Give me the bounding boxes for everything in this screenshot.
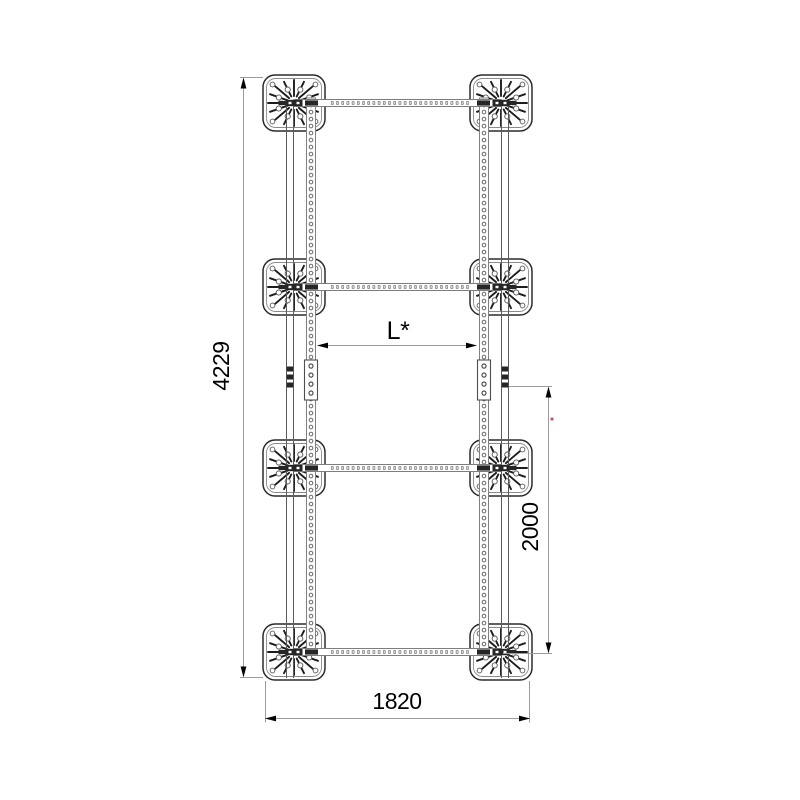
dimension-label-width-total: 1820	[372, 688, 421, 714]
cross-beam	[281, 465, 514, 472]
dimension-span-lower: 2000	[503, 387, 552, 654]
arrowhead-down-icon	[241, 667, 247, 678]
cross-beam	[281, 649, 514, 656]
dimension-span-variable: L*	[317, 317, 477, 348]
arrowhead-up-icon	[241, 78, 247, 89]
arrowhead-left-icon	[265, 716, 276, 722]
perforated-rail-right	[478, 98, 491, 653]
red-marker-dot	[550, 417, 553, 420]
arrowhead-left-icon	[317, 343, 328, 349]
technical-drawing-canvas: 4229 L* 2000 1820	[0, 0, 800, 800]
channel-rail-right	[502, 100, 509, 678]
base-plates	[263, 75, 532, 680]
dimension-label-span-variable: L*	[387, 317, 410, 345]
dimension-height-total: 4229	[208, 78, 263, 678]
arrowhead-down-icon	[546, 643, 552, 654]
arrowhead-up-icon	[546, 387, 552, 398]
dimension-label-span-lower: 2000	[517, 502, 543, 551]
dimension-width-total: 1820	[265, 681, 530, 723]
cross-beam	[281, 100, 514, 107]
channel-rail-left	[287, 100, 294, 678]
frame-assembly-drawing: 4229 L* 2000 1820	[0, 0, 800, 800]
vertical-rails	[287, 98, 509, 678]
arrowhead-right-icon	[519, 716, 530, 722]
perforated-rail-left	[305, 98, 318, 653]
dimension-label-height-total: 4229	[208, 341, 234, 390]
cross-beam	[281, 284, 514, 291]
arrowhead-right-icon	[466, 343, 477, 349]
